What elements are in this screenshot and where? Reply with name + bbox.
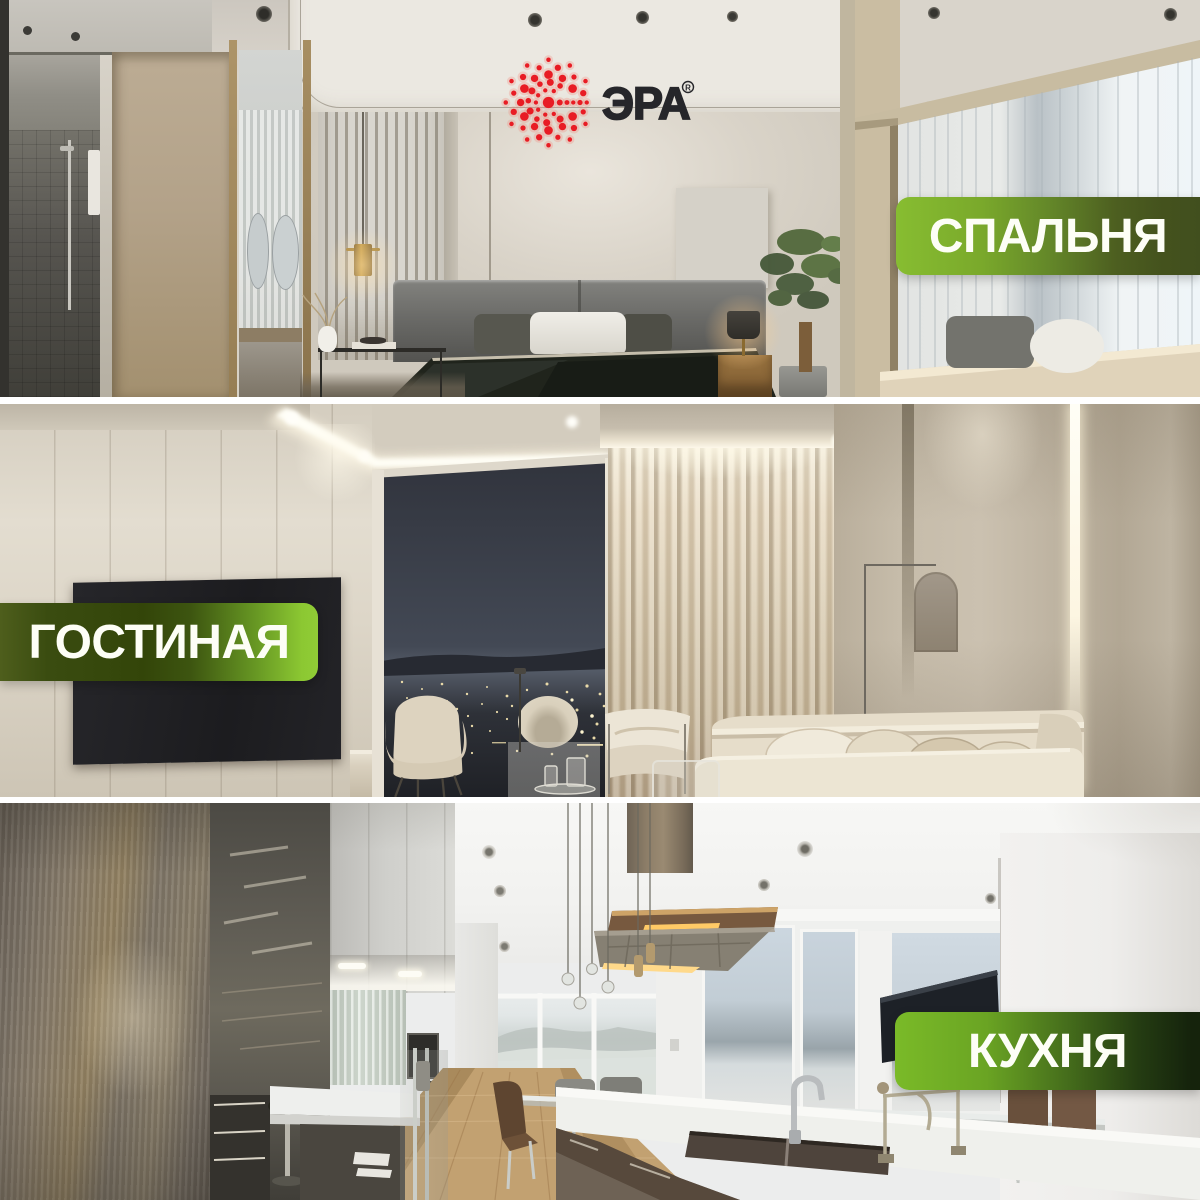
svg-text:R: R [685,84,691,93]
svg-text:ЭРА: ЭРА [602,78,690,129]
